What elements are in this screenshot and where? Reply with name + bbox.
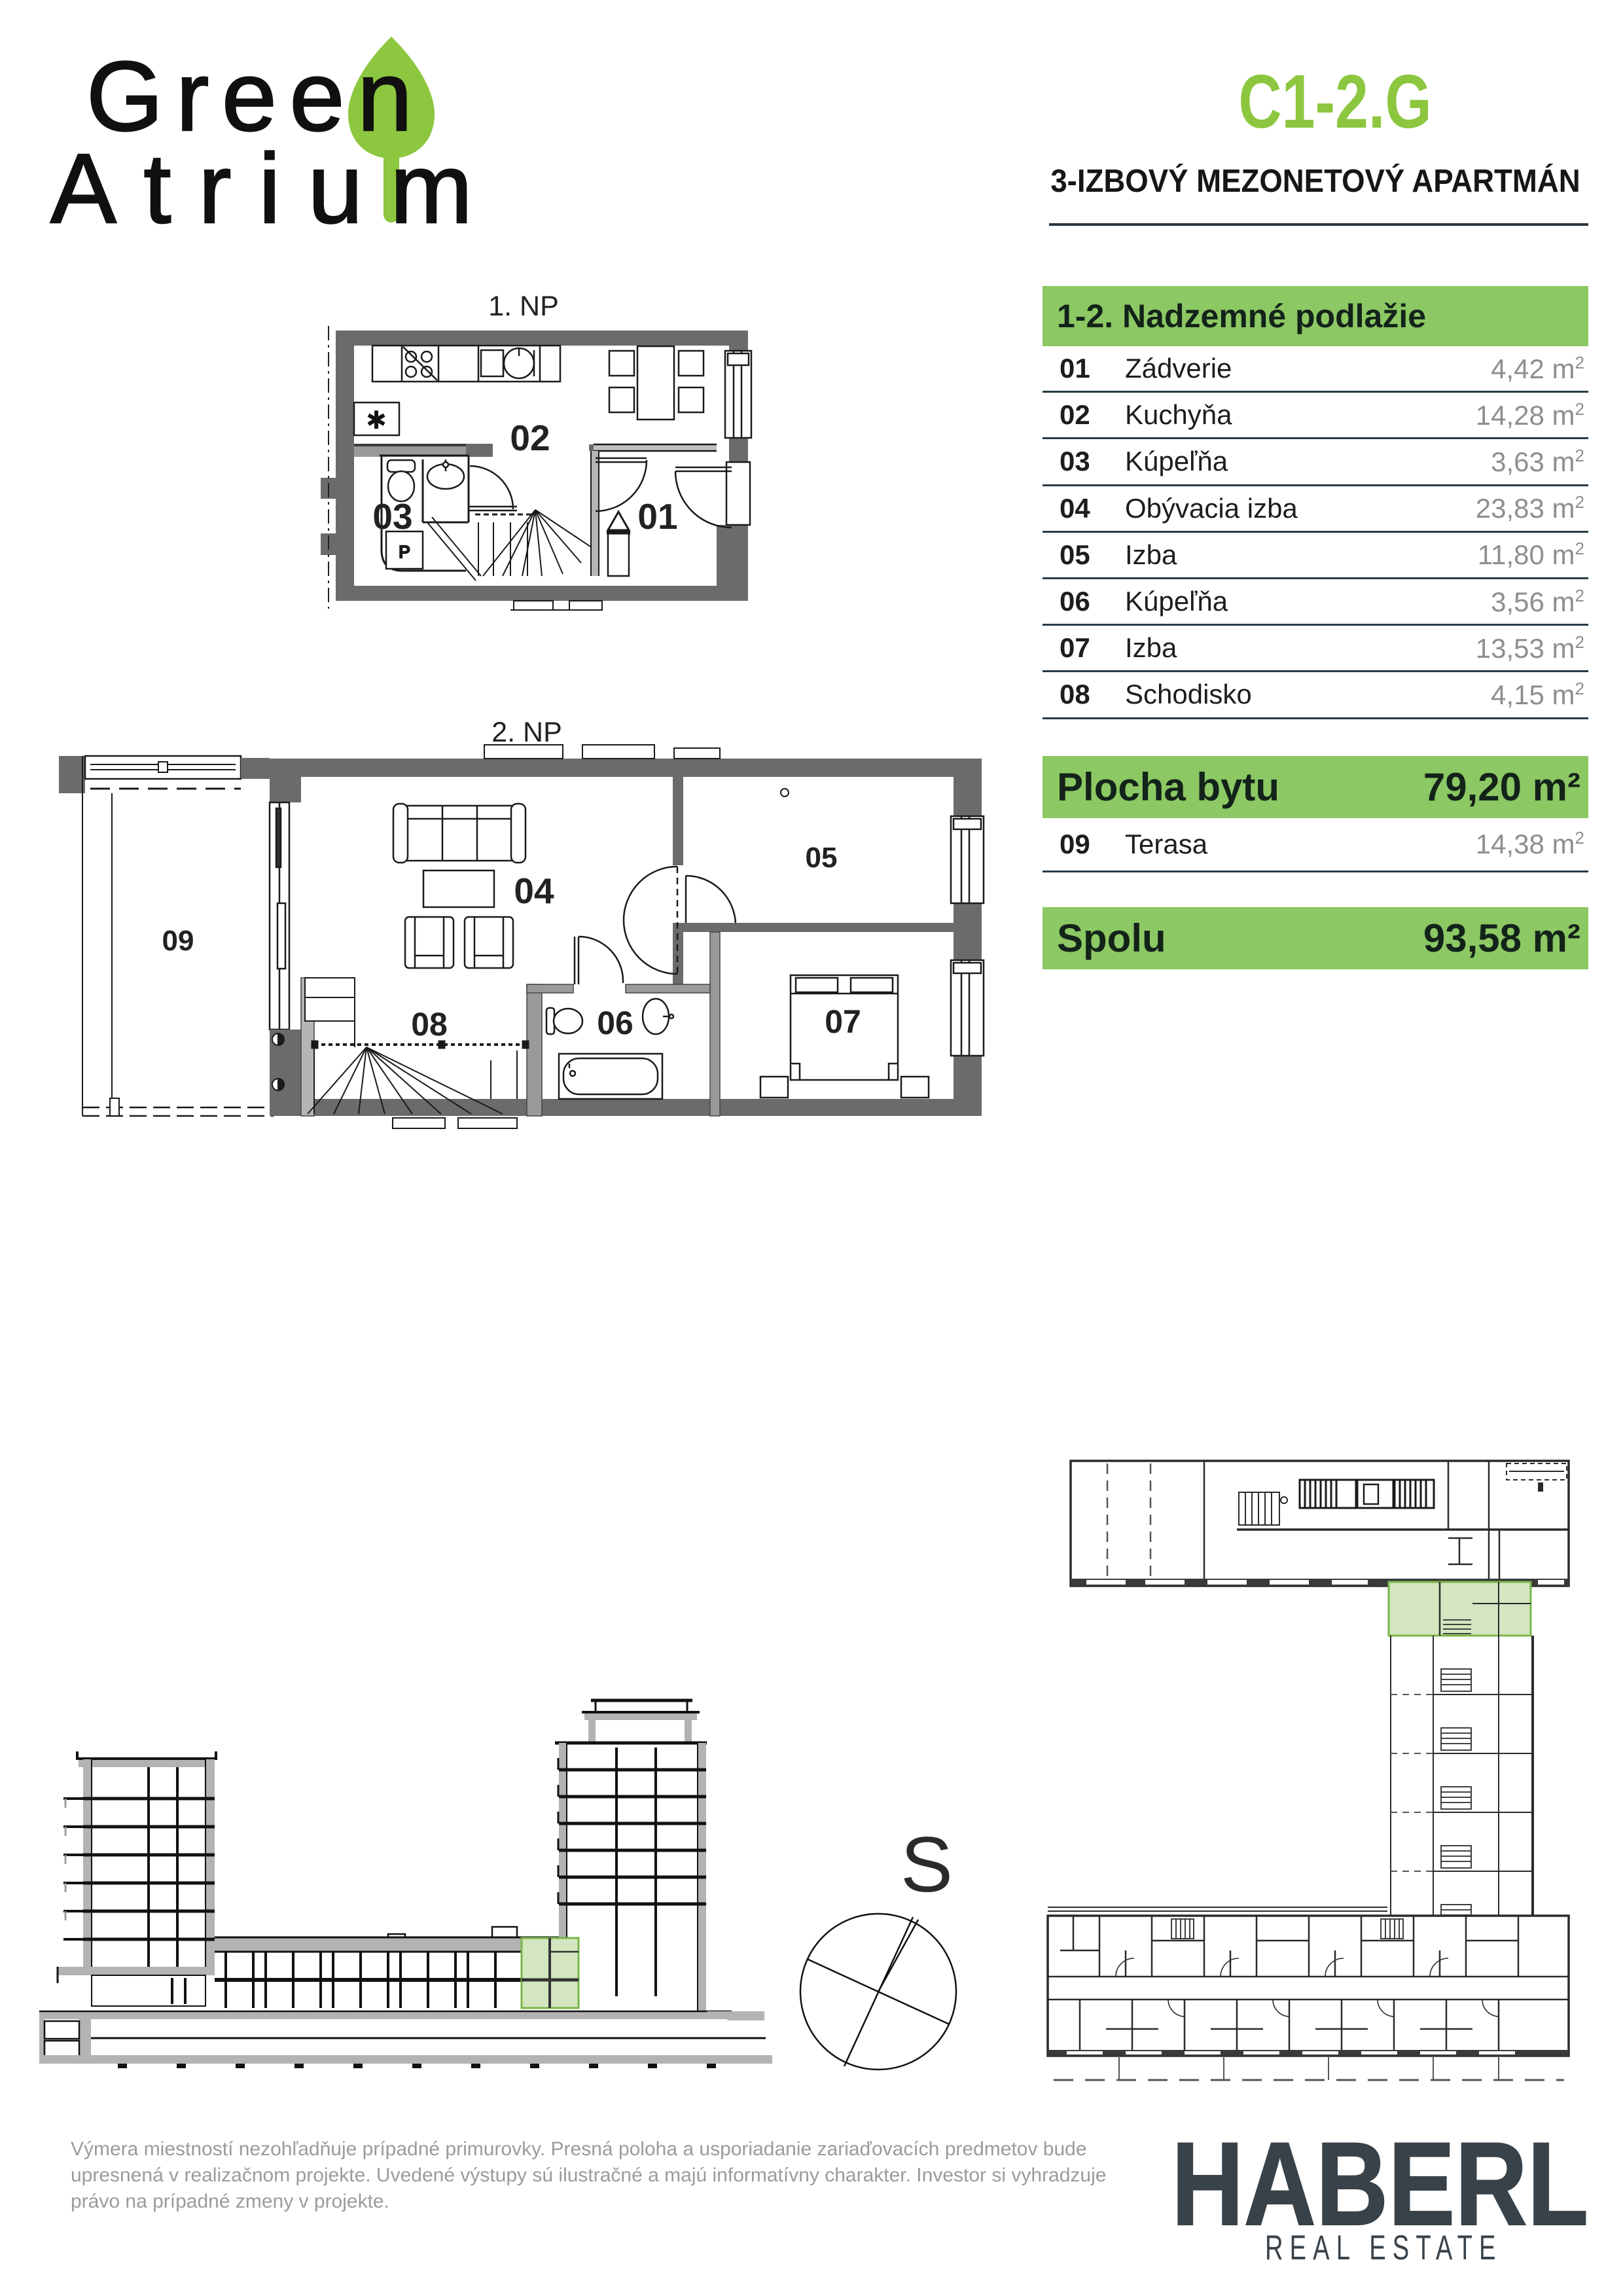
- svg-text:Green: Green: [86, 41, 412, 151]
- svg-text:08: 08: [411, 1006, 448, 1043]
- svg-text:2. NP: 2. NP: [491, 717, 562, 748]
- svg-text:05: 05: [806, 842, 838, 874]
- svg-text:02: 02: [510, 418, 550, 458]
- svg-text:07: 07: [825, 1003, 861, 1040]
- svg-text:Atrium: Atrium: [50, 133, 473, 236]
- svg-text:03: 03: [372, 496, 412, 537]
- svg-text:09: 09: [162, 925, 194, 957]
- svg-text:P: P: [399, 542, 410, 562]
- svg-text:04: 04: [514, 870, 554, 911]
- svg-text:S: S: [901, 1826, 953, 1909]
- svg-text:1. NP: 1. NP: [488, 291, 559, 322]
- svg-text:01: 01: [637, 496, 677, 537]
- svg-text:✱: ✱: [366, 407, 387, 435]
- svg-text:06: 06: [597, 1005, 633, 1041]
